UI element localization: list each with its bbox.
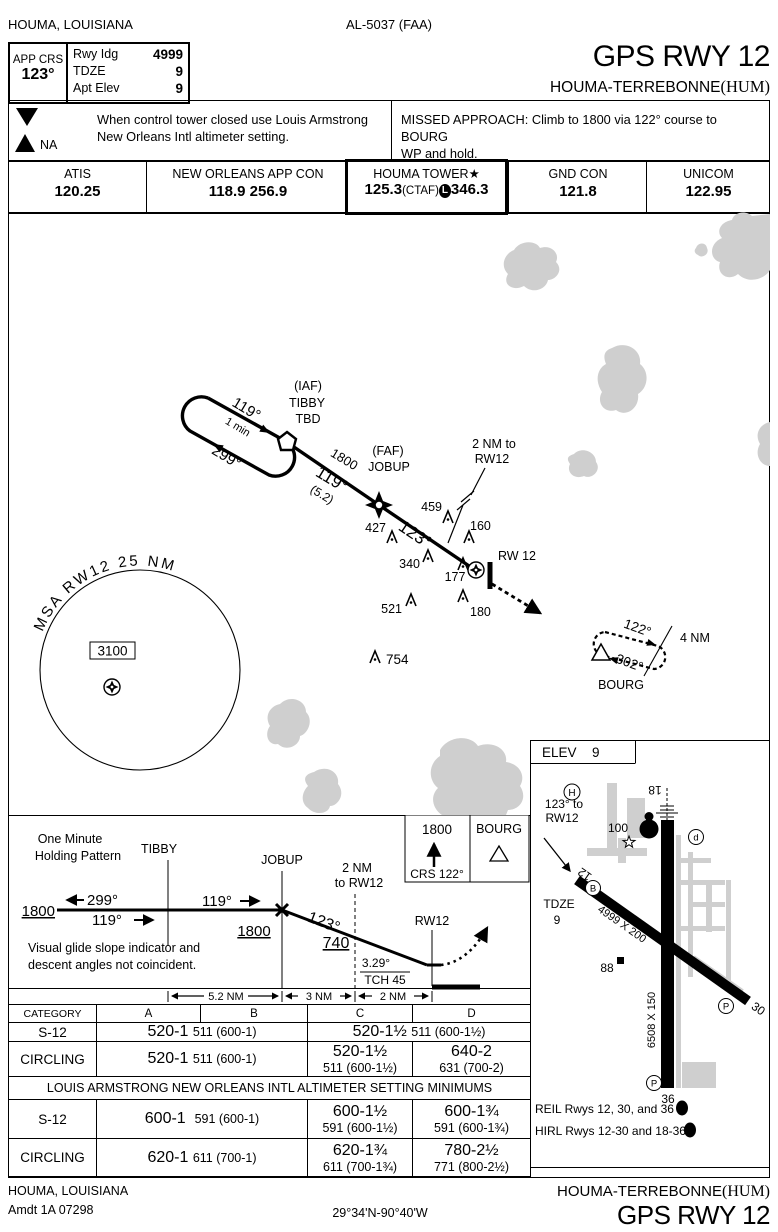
footer-procedure: GPS RWY 12 — [400, 1200, 770, 1231]
footer-airport: HOUMA-TERREBONNE(HUM) — [400, 1183, 770, 1201]
distance-3: 2 NM — [380, 991, 406, 1003]
sketch-tdze-label: TDZE — [543, 897, 574, 911]
approach-plate: HOUMA, LOUISIANA AL-5037 (FAA) APP CRS 1… — [0, 0, 778, 1232]
iaf-label: (IAF) — [294, 379, 322, 393]
descent-course: 123° — [305, 909, 342, 937]
ma-fix-name: BOURG — [476, 822, 522, 836]
tibby-holding-pattern: 119° 1 min 299° — [182, 394, 294, 476]
obstacle-elevation: 459 — [421, 500, 442, 514]
hirl-note: HIRL Rwys 12-30 and 18-36 — [535, 1124, 686, 1138]
bourg-waypoint-icon — [592, 644, 610, 660]
obstacle-icon — [406, 594, 416, 606]
app-crs-value: 123° — [10, 66, 66, 84]
final-course: 123° — [395, 517, 435, 552]
lead-line1: 2 NM to — [472, 437, 516, 451]
footer-amendment: Amdt 1A 07298 — [8, 1203, 93, 1217]
profile-lead2: to RW12 — [335, 876, 383, 890]
vgsi-note-line2: descent angles not coincident. — [28, 958, 196, 972]
msa-altitude: 3100 — [97, 644, 127, 659]
rw12-label: RW 12 — [498, 549, 536, 563]
ma-climb-curve — [441, 928, 487, 965]
chart-code: AL-5037 (FAA) — [0, 17, 778, 32]
minimums-table: CATEGORY A B C D S-12 520-1 511 (600-1) … — [8, 1004, 531, 1177]
obstacle-elevation: 177 — [445, 570, 466, 584]
profile-tibby-label: TIBBY — [141, 842, 178, 856]
circling-minima-d: 640-2631 (700-2) — [413, 1042, 531, 1077]
procedure-title: GPS RWY 12 — [400, 40, 770, 74]
missed-approach-note: MISSED APPROACH: Climb to 1800 via 122° … — [401, 111, 765, 162]
tch-value: TCH 45 — [364, 973, 406, 987]
profile-view: 1800 CRS 122° BOURG One Minute Holding P… — [8, 815, 530, 1004]
obstacle-elevation: 521 — [381, 602, 402, 616]
pilot-lighting-icon: L — [439, 184, 451, 198]
notes-row: T A NA When control tower closed use Lou… — [8, 100, 770, 162]
app-crs-label: APP CRS — [10, 54, 66, 66]
pilot-lighting-letter: L — [679, 1104, 685, 1115]
runway-18-36-dimensions: 6508 X 150 — [646, 992, 658, 1048]
circling-alt-minima-c: 620-1¾611 (700-1¾) — [308, 1139, 413, 1177]
gnd-label: GND CON — [509, 167, 647, 181]
obstacle-elevation: 160 — [470, 519, 491, 533]
lead-line2: RW12 — [475, 452, 510, 466]
appcon-label: NEW ORLEANS APP CON — [147, 167, 349, 181]
reil-note: REIL Rwys 12, 30, and 36 — [535, 1102, 674, 1116]
bourg-holding: 122° 302° 4 NM BOURG — [592, 616, 710, 692]
bourg-outbound-course: 302° — [614, 651, 645, 675]
runway-data-cell: Rwy Idg4999 TDZE9 Apt Elev9 — [68, 44, 188, 102]
tower-cell: HOUMA TOWER★ 125.3(CTAF)L346.3 — [345, 159, 508, 215]
holding-altitude: 1800 — [22, 903, 55, 920]
tower-note-line2: New Orleans Intl altimeter setting. — [97, 128, 387, 145]
approach-data-box: APP CRS 123° Rwy Idg4999 TDZE9 Apt Elev9 — [8, 42, 190, 104]
building-icon — [617, 957, 624, 964]
msa-circle: MSA RW12 25 NM 3100 — [31, 552, 240, 770]
tibby-tbd: TBD — [296, 412, 321, 426]
msa-center-waypoint-icon — [104, 679, 120, 695]
bourg-inbound-course: 122° — [622, 616, 653, 640]
ma-altitude: 1800 — [422, 822, 452, 837]
tibby-name: TIBBY — [289, 396, 326, 410]
tower-freq-2: 346.3 — [451, 181, 489, 198]
tower-ctaf: (CTAF) — [402, 185, 439, 197]
obstacle-icon — [458, 590, 468, 602]
field-elevation-100: 100 — [608, 821, 628, 835]
altimeter-band: LOUIS ARMSTRONG NEW ORLEANS INTL ALTIMET… — [9, 1077, 531, 1100]
s12-alt-minima-d: 600-1¾591 (600-1¾) — [413, 1100, 531, 1139]
sketch-obstacle-88: 88 — [600, 961, 614, 975]
rwy-ldg-value: 4999 — [153, 46, 183, 63]
gnd-cell: GND CON 121.8 — [508, 161, 647, 213]
s12-minima-ab: 520-1 511 (600-1) — [97, 1023, 308, 1042]
row-s12-alt-label: S-12 — [9, 1100, 97, 1139]
profile-jobup-label: JOBUP — [261, 853, 303, 867]
sketch-tdze-value: 9 — [554, 913, 561, 927]
tdze-value: 9 — [175, 63, 183, 80]
row-circling-label: CIRCLING — [9, 1042, 97, 1077]
obstacle-icon — [443, 511, 453, 523]
s12-minima-cd: 520-1½ 511 (600-1½) — [308, 1023, 531, 1042]
plan-view: MSA RW12 25 NM 3100 119° 1 min 299° (IAF… — [8, 212, 770, 815]
approach-lighting-code: A5 — [644, 825, 655, 835]
tower-star-icon: ★ — [469, 167, 480, 181]
bourg-leg-length: 4 NM — [680, 631, 710, 645]
circling-alt-minima-ab: 620-1 611 (700-1) — [97, 1139, 308, 1177]
taxiway-letter: P — [723, 1002, 729, 1013]
appcon-value: 118.9 256.9 — [147, 183, 349, 200]
takeoff-minimums-icon: T — [15, 107, 39, 127]
faf-label: (FAF) — [372, 444, 403, 458]
rw12-waypoint-icon — [468, 562, 484, 578]
holding-title-line2: Holding Pattern — [35, 849, 121, 863]
obstacle-elevation: 754 — [386, 652, 409, 667]
obstacle-elevation: 340 — [399, 557, 420, 571]
apt-elev-label: Apt Elev — [73, 80, 120, 97]
airport-title: HOUMA-TERREBONNE(HUM) — [300, 77, 770, 97]
circling-minima-ab: 520-1 511 (600-1) — [97, 1042, 308, 1077]
rwy-ldg-label: Rwy Idg — [73, 46, 118, 63]
s12-alt-minima-ab: 600-1 591 (600-1) — [97, 1100, 308, 1139]
tower-closed-note: When control tower closed use Louis Arms… — [97, 111, 387, 145]
outbound-course: 299° — [87, 892, 118, 909]
col-c: C — [308, 1005, 413, 1023]
row-circling-alt-label: CIRCLING — [9, 1139, 97, 1177]
tdze-label: TDZE — [73, 63, 106, 80]
intermediate-course: 119° — [202, 893, 232, 910]
obstacle-icon — [387, 531, 397, 543]
terrain-shading — [267, 213, 770, 815]
airport-icao: (HUM) — [721, 77, 771, 96]
taxiway-letter: d — [693, 833, 698, 844]
sketch-course-line2: RW12 — [545, 811, 578, 825]
ma-course: CRS 122° — [410, 867, 464, 881]
bourg-name: BOURG — [598, 678, 644, 692]
col-b: B — [201, 1005, 308, 1023]
unicom-value: 122.95 — [647, 183, 770, 200]
unicom-cell: UNICOM 122.95 — [646, 161, 770, 213]
jobup-waypoint-icon — [365, 491, 393, 519]
obstacle-elevation: 427 — [365, 521, 386, 535]
missed-approach-line1: MISSED APPROACH: Climb to 1800 via 122° … — [401, 111, 765, 145]
sketch-course-line1: 123° to — [545, 797, 583, 811]
alternate-na-label: NA — [40, 138, 58, 152]
pilot-lighting-letter: L — [687, 1126, 693, 1137]
holding-title-line1: One Minute — [38, 832, 103, 846]
profile-lead1: 2 NM — [342, 861, 372, 875]
airport-name: HOUMA-TERREBONNE — [550, 79, 721, 96]
footer-airport-name: HOUMA-TERREBONNE — [557, 1183, 722, 1200]
alternate-icon-letter: A — [21, 141, 28, 152]
row-s12-label: S-12 — [9, 1023, 97, 1042]
atis-value: 120.25 — [9, 183, 146, 200]
distance-2: 3 NM — [306, 991, 332, 1003]
bourg-arrow — [646, 639, 657, 648]
apt-elev-value: 9 — [175, 80, 183, 97]
circling-alt-minima-d: 780-2½771 (800-2½) — [413, 1139, 531, 1177]
taxiway-letter: B — [590, 884, 596, 895]
footer-airport-icao: (HUM) — [722, 1183, 770, 1200]
alternate-na-icon: A NA — [15, 132, 75, 154]
profile-rw12-label: RW12 — [415, 914, 450, 928]
notes-divider — [391, 101, 392, 161]
circling-minima-c: 520-1½511 (600-1½) — [308, 1042, 413, 1077]
atis-cell: ATIS 120.25 — [9, 161, 146, 213]
elev-label: ELEV — [542, 745, 577, 760]
elev-value: 9 — [592, 745, 600, 760]
missed-approach-track — [492, 584, 540, 613]
appcon-cell: NEW ORLEANS APP CON 118.9 256.9 — [146, 161, 349, 213]
obstacle-icon — [370, 651, 380, 663]
tower-note-line1: When control tower closed use Louis Arms… — [97, 111, 387, 128]
tibby-waypoint-icon — [278, 432, 296, 450]
holding-outbound-course: 299° — [209, 442, 244, 473]
tower-freq-1: 125.3 — [365, 181, 403, 198]
jobup-name: JOBUP — [368, 460, 410, 474]
col-a: A — [97, 1005, 201, 1023]
col-d: D — [413, 1005, 531, 1023]
takeoff-icon-letter: T — [24, 111, 30, 122]
unicom-label: UNICOM — [647, 167, 770, 181]
obstacles: 459 160 427 340 177 521 180 754 — [365, 500, 491, 667]
app-crs-cell: APP CRS 123° — [10, 44, 68, 102]
atis-label: ATIS — [9, 167, 146, 181]
distance-1: 5.2 NM — [208, 991, 243, 1003]
step-altitude: 740 — [323, 935, 350, 952]
inbound-course: 119° — [92, 912, 122, 929]
frequency-row: ATIS 120.25 NEW ORLEANS APP CON 118.9 25… — [8, 160, 770, 214]
glide-angle: 3.29° — [362, 956, 390, 970]
taxiway-letter: P — [651, 1079, 657, 1090]
tower-value: 125.3(CTAF)L346.3 — [348, 181, 505, 198]
tower-label: HOUMA TOWER★ — [348, 166, 505, 181]
airport-sketch: ELEV 9 H 123° to RW12 100 A5 18 36 6508 … — [530, 740, 770, 1168]
runway-18-number: 18 — [648, 783, 662, 797]
s12-alt-minima-c: 600-1½591 (600-1½) — [308, 1100, 413, 1139]
vgsi-note-line1: Visual glide slope indicator and — [28, 941, 200, 955]
category-header: CATEGORY — [9, 1005, 97, 1023]
runway-18-36 — [661, 820, 674, 1088]
footer-city-state: HOUMA, LOUISIANA — [8, 1184, 128, 1198]
obstacle-elevation: 180 — [470, 605, 491, 619]
intermediate-altitude: 1800 — [237, 923, 270, 940]
gnd-value: 121.8 — [509, 183, 647, 200]
